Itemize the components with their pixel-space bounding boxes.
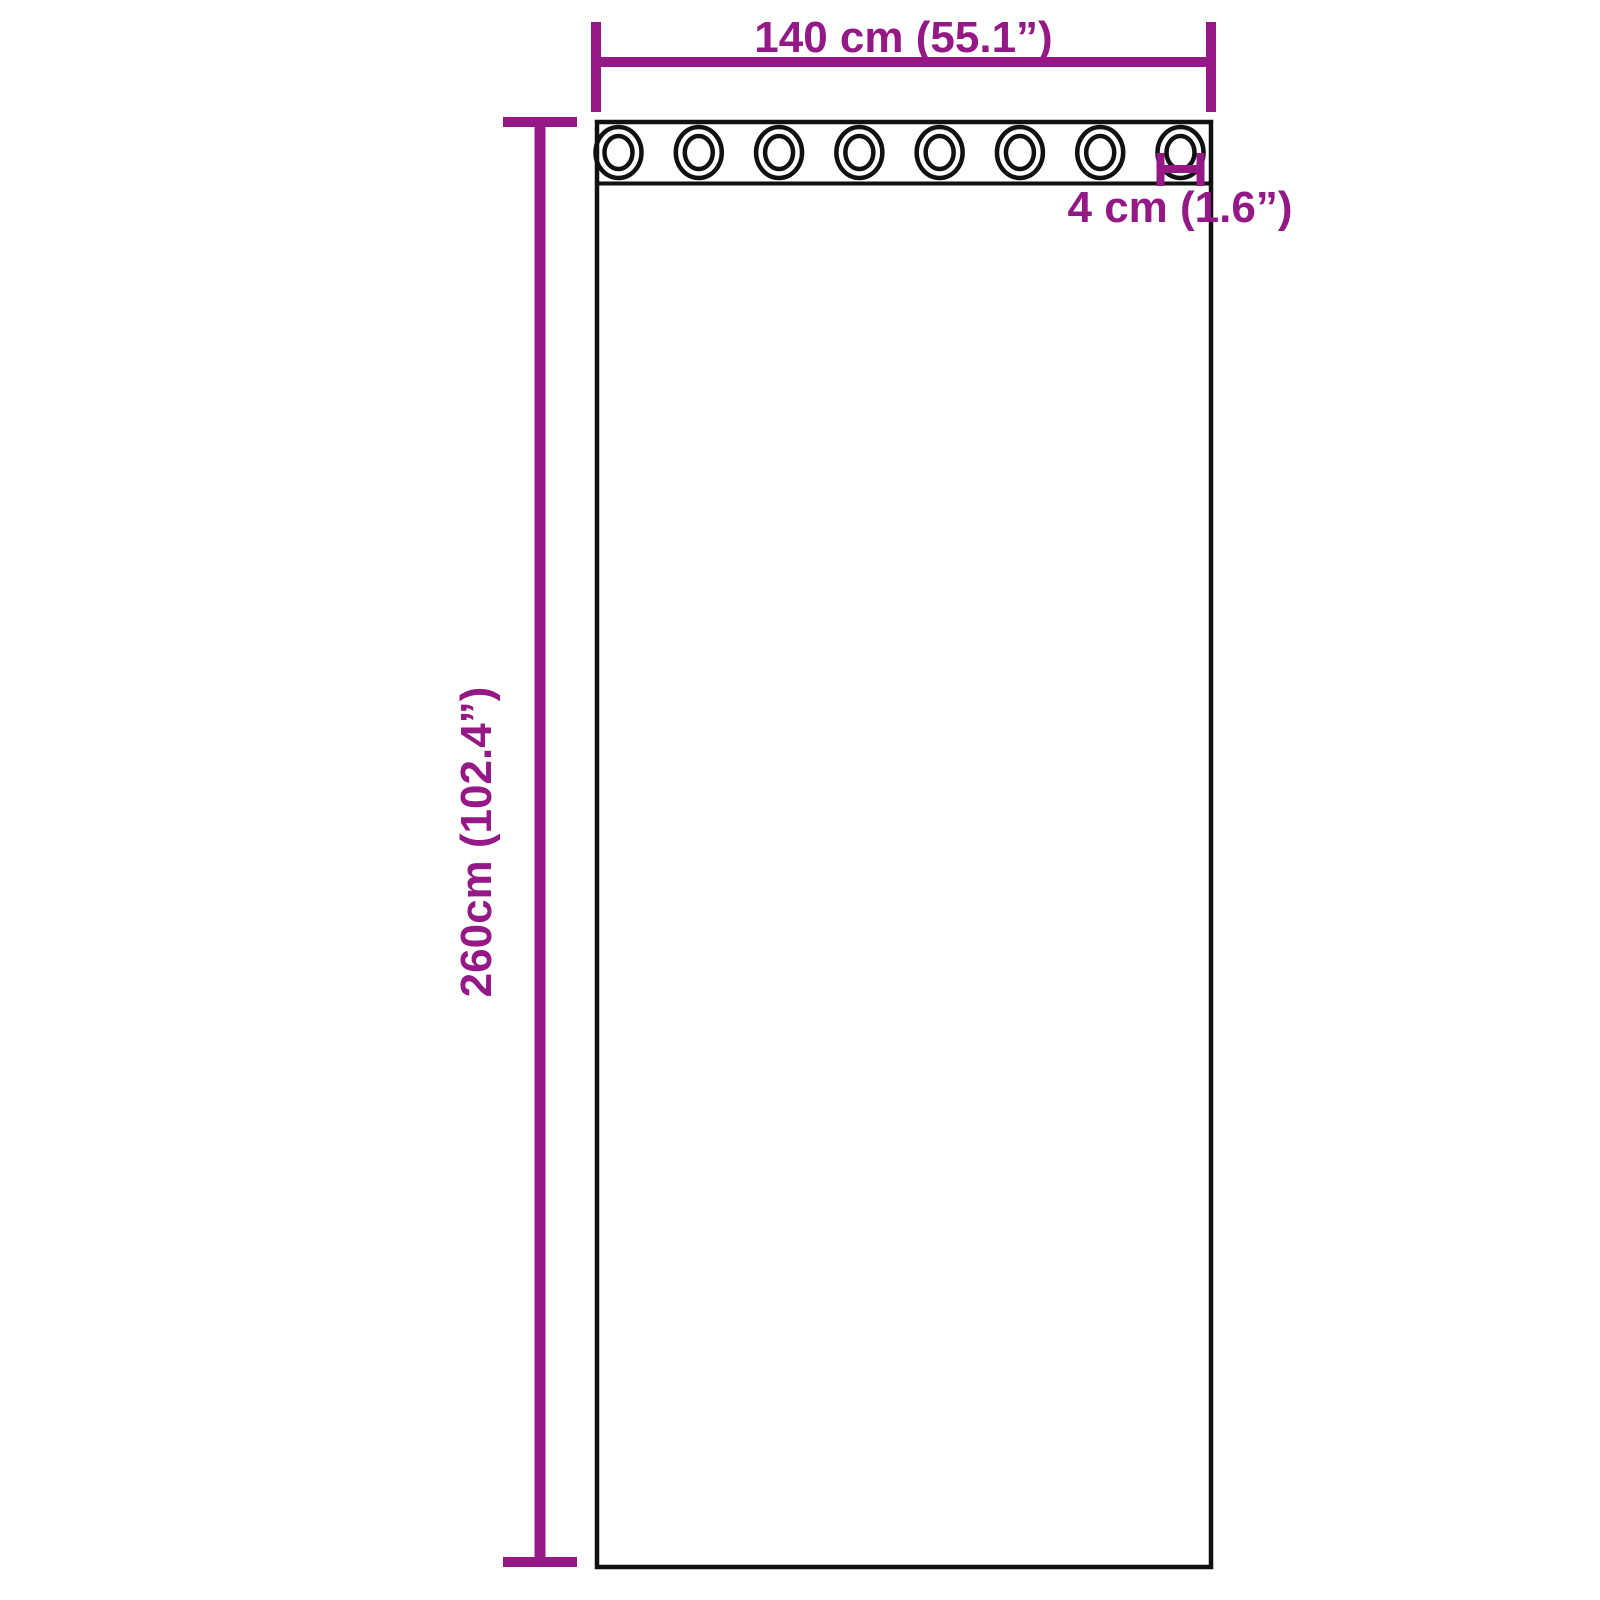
- grommet-dimension-bracket: [1157, 153, 1204, 186]
- grommet-row: [596, 127, 1204, 178]
- curtain-diagram: [0, 0, 1600, 1600]
- grommet-inner-ring: [685, 136, 713, 169]
- grommet-dimension-label: 4 cm (1.6”): [1068, 186, 1293, 230]
- width-dimension-label: 140 cm (55.1”): [596, 16, 1211, 60]
- grommet-inner-ring: [845, 136, 873, 169]
- grommet-ring: [997, 127, 1043, 178]
- grommet-inner-ring: [1167, 136, 1195, 169]
- curtain-panel: [597, 122, 1211, 1567]
- grommet-inner-ring: [926, 136, 954, 169]
- curtain-body: [597, 122, 1211, 1567]
- grommet-ring: [917, 127, 963, 178]
- diagram-canvas: 140 cm (55.1”) 260cm (102.4”) 4 cm (1.6”…: [0, 0, 1600, 1600]
- grommet-ring: [1077, 127, 1123, 178]
- grommet-ring: [676, 127, 722, 178]
- grommet-ring: [836, 127, 882, 178]
- grommet-ring: [596, 127, 642, 178]
- grommet-inner-ring: [1086, 136, 1114, 169]
- height-dimension-label: 260cm (102.4”): [455, 687, 499, 998]
- grommet-inner-ring: [1006, 136, 1034, 169]
- height-dimension-line: [503, 122, 577, 1562]
- grommet-inner-ring: [765, 136, 793, 169]
- grommet-ring: [756, 127, 802, 178]
- grommet-inner-ring: [605, 136, 633, 169]
